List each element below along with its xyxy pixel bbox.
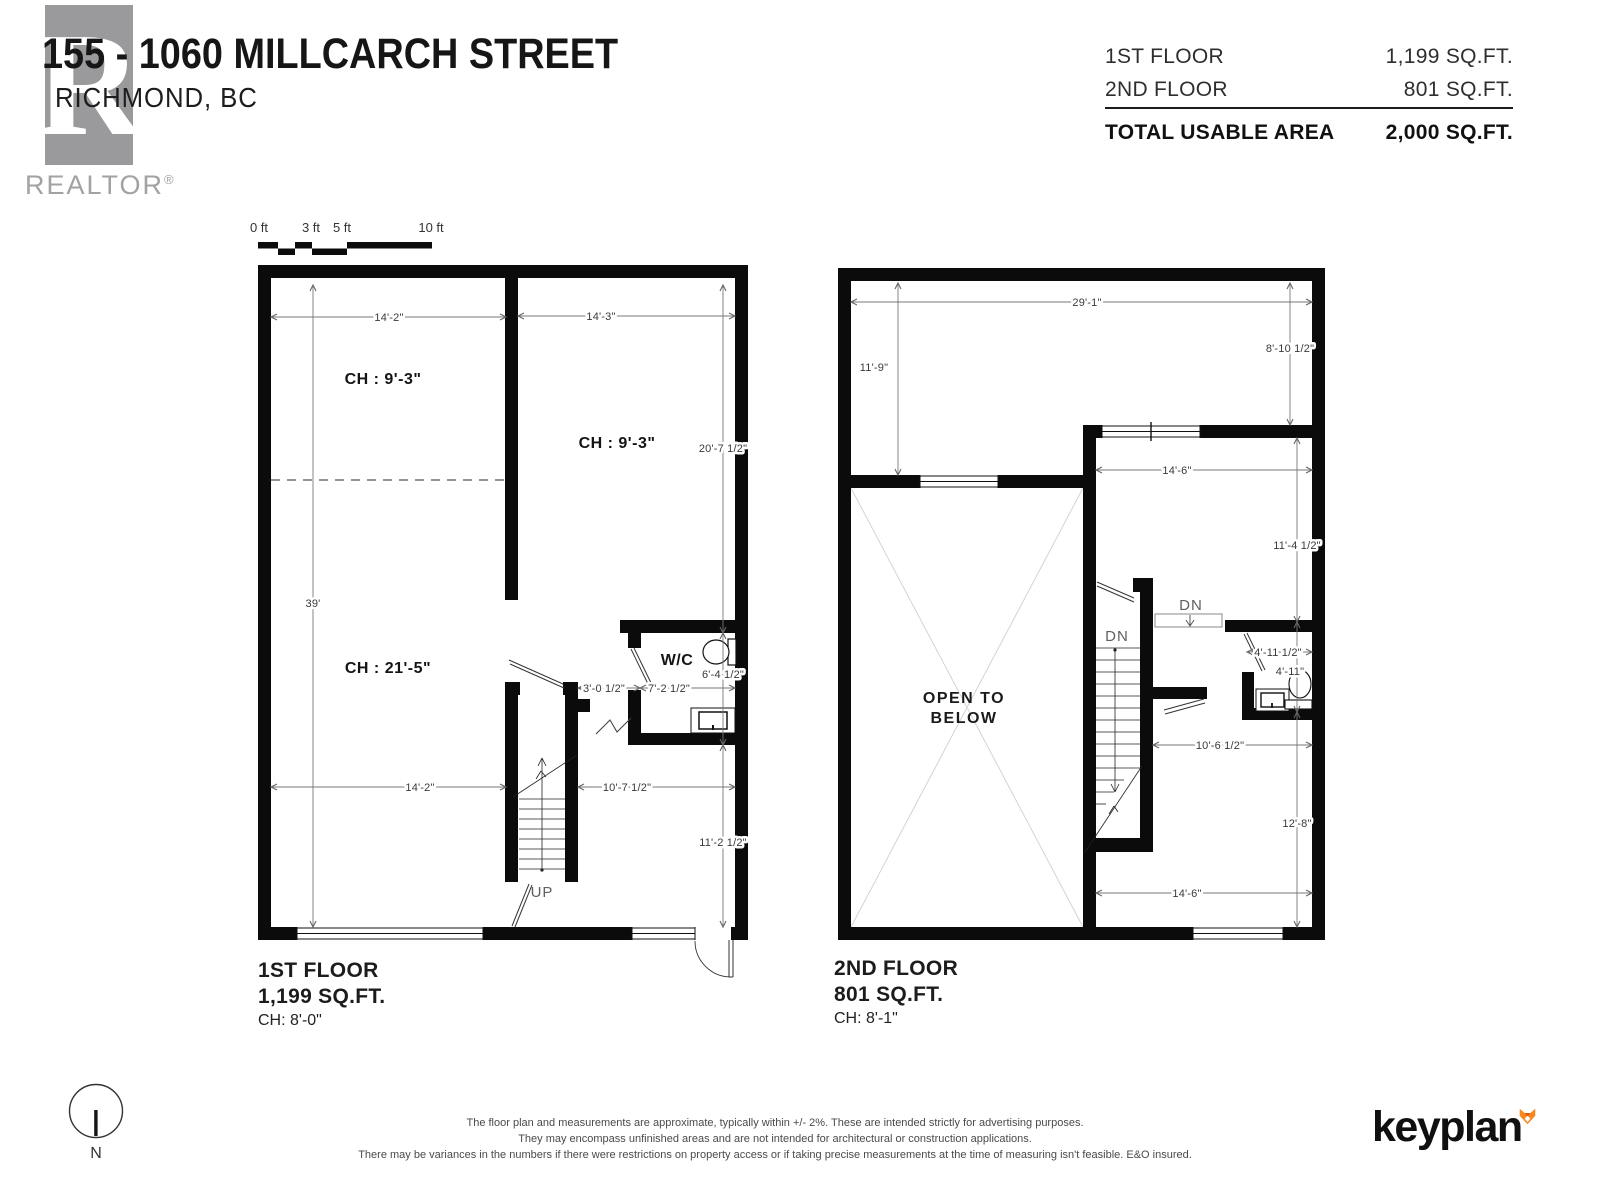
dim-label: 29'-1" (1072, 297, 1101, 309)
floor2-windows (920, 422, 1283, 940)
stair-dn-label: DN (1105, 628, 1129, 645)
area-total-label: TOTAL USABLE AREA (1105, 121, 1335, 145)
dim-label: 11'-9" (860, 362, 888, 374)
dim-label: 10'-7 1/2" (603, 782, 651, 794)
disclaimer: The floor plan and measurements are appr… (325, 1115, 1225, 1163)
open-to-below-label: BELOW (930, 710, 997, 727)
floor2-area: 801 SQ.FT. (834, 982, 958, 1008)
sink-icon (691, 708, 735, 733)
area-row-1st-floor: 1ST FLOOR 1,199 SQ.FT. (1105, 40, 1513, 73)
open-to-below-label: OPEN TO (923, 690, 1005, 707)
toilet-icon (703, 639, 736, 665)
dn-steps (1155, 614, 1222, 627)
area-total-value: 2,000 SQ.FT. (1386, 121, 1513, 145)
scale-label-10ft: 10 ft (418, 220, 444, 235)
dim-label: 14'-3" (586, 311, 615, 323)
scale-bar-labels: 0 ft 3 ft 5 ft 10 ft (250, 220, 444, 235)
north-needle (94, 1110, 97, 1136)
dim-label: 4'-11 1/2" (1254, 647, 1302, 659)
keyplan-logo: keyplan (1372, 1102, 1522, 1152)
dim-label: 11'-2 1/2" (699, 837, 747, 849)
floor1-caption: 1ST FLOOR 1,199 SQ.FT. CH: 8'-0" (258, 958, 385, 1030)
dim-label: 39' (306, 598, 321, 610)
dim-label: 20'-7 1/2" (699, 443, 747, 455)
dim-label: 14'-6" (1162, 465, 1191, 477)
stair-up-label: UP (531, 884, 554, 901)
area-row-label: 2ND FLOOR (1105, 78, 1228, 102)
floor2-caption: 2ND FLOOR 801 SQ.FT. CH: 8'-1" (834, 956, 958, 1028)
area-row-value: 1,199 SQ.FT. (1386, 45, 1513, 69)
floor1-area: 1,199 SQ.FT. (258, 984, 385, 1010)
realtor-wordmark: REALTOR® (25, 170, 176, 201)
area-row-label: 1ST FLOOR (1105, 45, 1224, 69)
floor2-ceiling-height: CH: 8'-1" (834, 1010, 958, 1028)
page-subtitle: RICHMOND, BC (55, 82, 258, 114)
disclaimer-line: The floor plan and measurements are appr… (325, 1115, 1225, 1131)
floor1-ceiling-height: CH: 8'-0" (258, 1012, 385, 1030)
floor1-dimension-lines (271, 285, 735, 927)
area-summary-table: 1ST FLOOR 1,199 SQ.FT. 2ND FLOOR 801 SQ.… (1105, 40, 1513, 145)
floor2-dimension-lines (851, 283, 1312, 927)
sink-icon (1256, 689, 1289, 711)
dim-label: 7'-2 1/2" (648, 683, 690, 695)
dim-label: 14'-6" (1172, 888, 1201, 900)
area-row-2nd-floor: 2ND FLOOR 801 SQ.FT. (1105, 73, 1513, 106)
dim-label: 10'-6 1/2" (1196, 740, 1244, 752)
disclaimer-line: There may be variances in the numbers if… (325, 1147, 1225, 1163)
north-label: N (90, 1145, 102, 1162)
scale-label-3ft: 3 ft (302, 220, 320, 235)
scale-label-0ft: 0 ft (250, 220, 268, 235)
registered-mark: ® (164, 172, 176, 187)
disclaimer-line: They may encompass unfinished areas and … (325, 1131, 1225, 1147)
dim-label: 14'-2" (405, 782, 434, 794)
scale-label-5ft: 5 ft (333, 220, 351, 235)
floor2-plan: 29'-1" 11'-9" 8'-10 1/2" 14'-6" 11'-4 1/… (798, 250, 1360, 990)
north-arrow: N (56, 1072, 140, 1176)
dim-label: 6'-4 1/2" (702, 669, 744, 681)
floor2-walls (838, 268, 1325, 940)
dim-label: 8'-10 1/2" (1266, 343, 1314, 355)
room-label-ch: CH : 9'-3" (579, 435, 656, 452)
dim-label: 4'-11" (1276, 666, 1304, 678)
dim-label: 3'-0 1/2" (583, 683, 625, 695)
keyplan-wordmark: keyplan (1372, 1103, 1522, 1151)
floor1-walls (258, 265, 748, 940)
floor1-plan: 14'-2" 14'-3" 39' 20'-7 1/2" 6'-4 1/2" 1… (238, 250, 760, 990)
dim-label: 12'-8" (1282, 818, 1311, 830)
room-label-ch: CH : 21'-5" (345, 660, 431, 677)
room-label-ch: CH : 9'-3" (345, 371, 422, 388)
dim-label: 11'-4 1/2" (1273, 540, 1321, 552)
dim-label: 14'-2" (374, 312, 403, 324)
floor2-name: 2ND FLOOR (834, 956, 958, 982)
entry-door (695, 940, 733, 977)
page-title: 155 - 1060 MILLCARCH STREET (42, 30, 618, 79)
open-to-below-cross (851, 488, 1083, 927)
area-total-row: TOTAL USABLE AREA 2,000 SQ.FT. (1105, 109, 1513, 145)
steps-dn-label: DN (1179, 597, 1203, 614)
fox-icon (1519, 1108, 1536, 1125)
floor1-name: 1ST FLOOR (258, 958, 385, 984)
area-row-value: 801 SQ.FT. (1404, 78, 1513, 102)
wall-break-symbol (596, 718, 631, 734)
room-label-wc: W/C (661, 652, 694, 669)
